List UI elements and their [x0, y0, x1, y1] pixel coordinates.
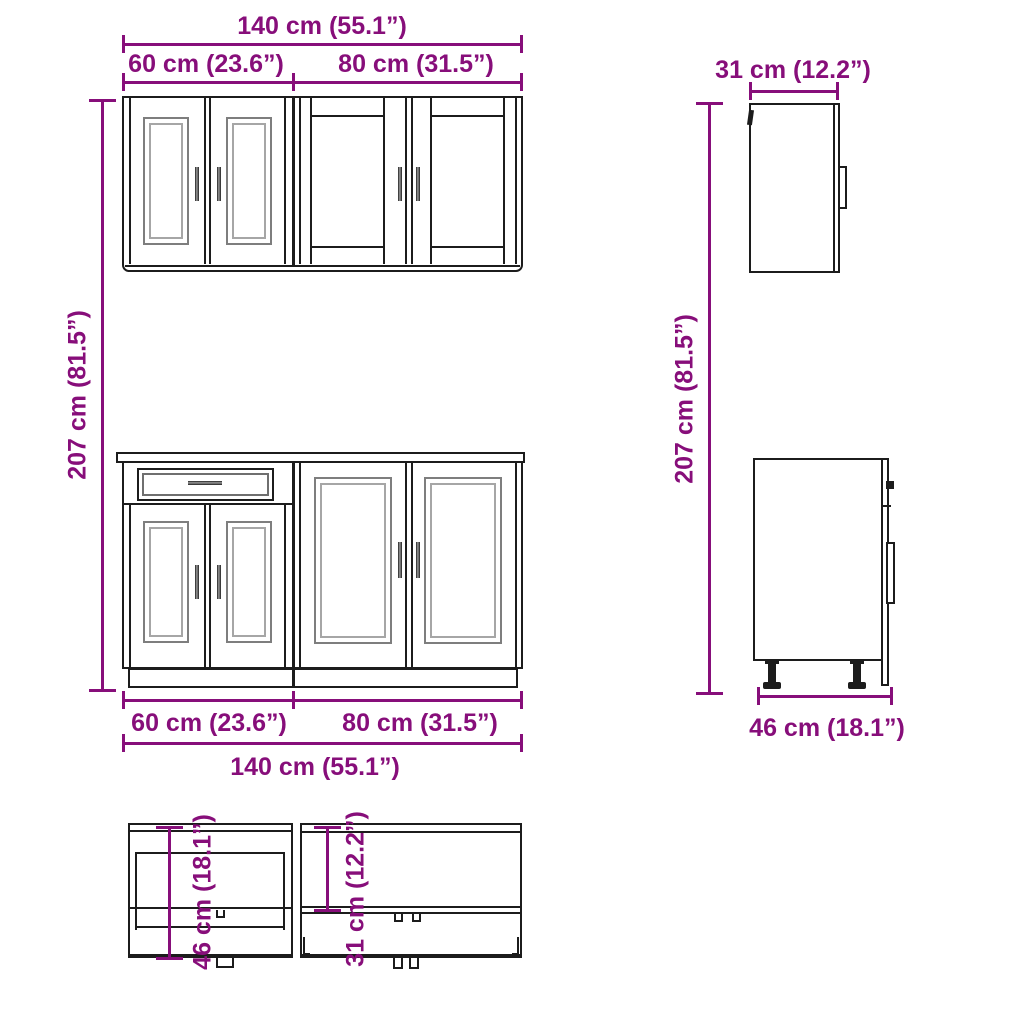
door-edge-line: [209, 505, 211, 667]
dim-mid-tick: [292, 73, 295, 91]
door-edge-line: [284, 98, 286, 264]
door-handle: [398, 542, 402, 578]
door-rail-line: [432, 115, 503, 117]
base-cabinet-side-handle: [886, 542, 895, 604]
plan-line: [302, 906, 520, 908]
door-handle: [217, 167, 221, 201]
plan-line: [302, 912, 520, 914]
door-edge-line: [129, 505, 131, 667]
door-handle: [195, 167, 199, 201]
dim-line-plan-base-depth: [168, 826, 171, 960]
plan-line: [302, 831, 520, 833]
door-edge-line: [405, 463, 407, 667]
dim-line-top-total-width: [122, 43, 523, 46]
base-door-recessed-panel: [226, 521, 272, 643]
plan-tab: [409, 956, 419, 969]
wall-cabinet-divider-line: [292, 96, 295, 265]
base-door-recessed-panel: [143, 521, 189, 643]
door-edge-line: [411, 463, 413, 667]
door-edge-line: [405, 98, 407, 264]
dim-label-base-depth: 46 cm (18.1”): [749, 716, 905, 741]
door-rail-line: [312, 246, 383, 248]
plan-tab: [216, 956, 234, 968]
plinth-joint-line: [292, 668, 295, 688]
dim-label-bottom-left-width: 60 cm (23.6”): [131, 711, 287, 736]
dim-line-bottom-total-width: [122, 742, 523, 745]
hinge-mark: [886, 481, 894, 489]
wall-door-recessed-panel: [226, 117, 272, 245]
dim-line-plan-wall-depth: [326, 826, 329, 912]
plan-line: [135, 852, 137, 930]
plan-tab: [393, 956, 403, 969]
dim-line-height-left: [101, 99, 104, 692]
dim-line-top-split-width: [122, 81, 523, 84]
dim-label-top-left-width: 60 cm (23.6”): [128, 52, 284, 77]
door-edge-line: [209, 98, 211, 264]
door-handle: [416, 542, 420, 578]
door-handle: [416, 167, 420, 201]
door-edge-line: [284, 505, 286, 667]
adjustable-foot: [853, 664, 861, 683]
plan-door-corner: [303, 937, 310, 955]
hinge-mark: [882, 505, 891, 507]
plan-line: [283, 852, 285, 930]
door-rail-line: [312, 115, 383, 117]
dim-line-bottom-split-width: [122, 699, 523, 702]
drawer-handle: [188, 481, 222, 485]
door-edge-line: [515, 98, 517, 264]
door-edge-line: [411, 98, 413, 264]
wall-door-recessed-panel: [143, 117, 189, 245]
door-stile-line: [383, 98, 385, 264]
dim-label-plan-wall-depth: 31 cm (12.2”): [344, 811, 369, 967]
adjustable-foot: [768, 664, 776, 683]
wall-cabinet-side-handle: [838, 166, 847, 209]
base-cabinet-divider-line: [292, 461, 295, 669]
door-rail-line: [432, 246, 503, 248]
dim-label-top-right-width: 80 cm (31.5”): [338, 52, 494, 77]
hinge-clip-mark: [412, 914, 421, 922]
dim-label-bottom-total-width: 140 cm (55.1”): [230, 755, 400, 780]
dim-label-top-total-width: 140 cm (55.1”): [237, 14, 407, 39]
door-edge-line: [299, 98, 301, 264]
dim-line-base-depth: [757, 695, 893, 698]
dim-label-height-left: 207 cm (81.5”): [66, 310, 91, 480]
hinge-clip-mark: [216, 910, 225, 918]
dim-mid-tick: [292, 691, 295, 709]
wall-plan-outline: [300, 823, 522, 958]
adjustable-foot: [848, 682, 866, 689]
door-edge-line: [299, 463, 301, 667]
door-handle: [217, 565, 221, 599]
door-edge-line: [204, 98, 206, 264]
plinth: [128, 668, 518, 688]
adjustable-foot: [763, 682, 781, 689]
door-stile-line: [503, 98, 505, 264]
dim-line-wall-depth: [749, 90, 839, 93]
dim-label-height-right: 207 cm (81.5”): [673, 314, 698, 484]
dim-label-bottom-right-width: 80 cm (31.5”): [342, 711, 498, 736]
wall-cabinet-side-body: [749, 103, 835, 273]
dim-label-plan-base-depth: 46 cm (18.1”): [191, 814, 216, 970]
drawer-divider-line: [122, 503, 292, 505]
door-edge-line: [204, 505, 206, 667]
plan-door-corner: [512, 937, 519, 955]
technical-drawing-canvas: 140 cm (55.1”) 60 cm (23.6”) 80 cm (31.5…: [0, 0, 1024, 1024]
door-edge-line: [129, 98, 131, 264]
door-stile-line: [310, 98, 312, 264]
hinge-clip-mark: [394, 914, 403, 922]
door-handle: [398, 167, 402, 201]
dim-label-wall-depth: 31 cm (12.2”): [715, 58, 871, 83]
base-cabinet-side-body: [753, 458, 883, 661]
door-edge-line: [515, 463, 517, 667]
base-door-recessed-panel: [314, 477, 392, 644]
base-door-recessed-panel: [424, 477, 502, 644]
wall-cabinet-bottom-lip-line: [125, 265, 520, 267]
door-stile-line: [430, 98, 432, 264]
door-handle: [195, 565, 199, 599]
dim-line-height-right: [708, 102, 711, 695]
